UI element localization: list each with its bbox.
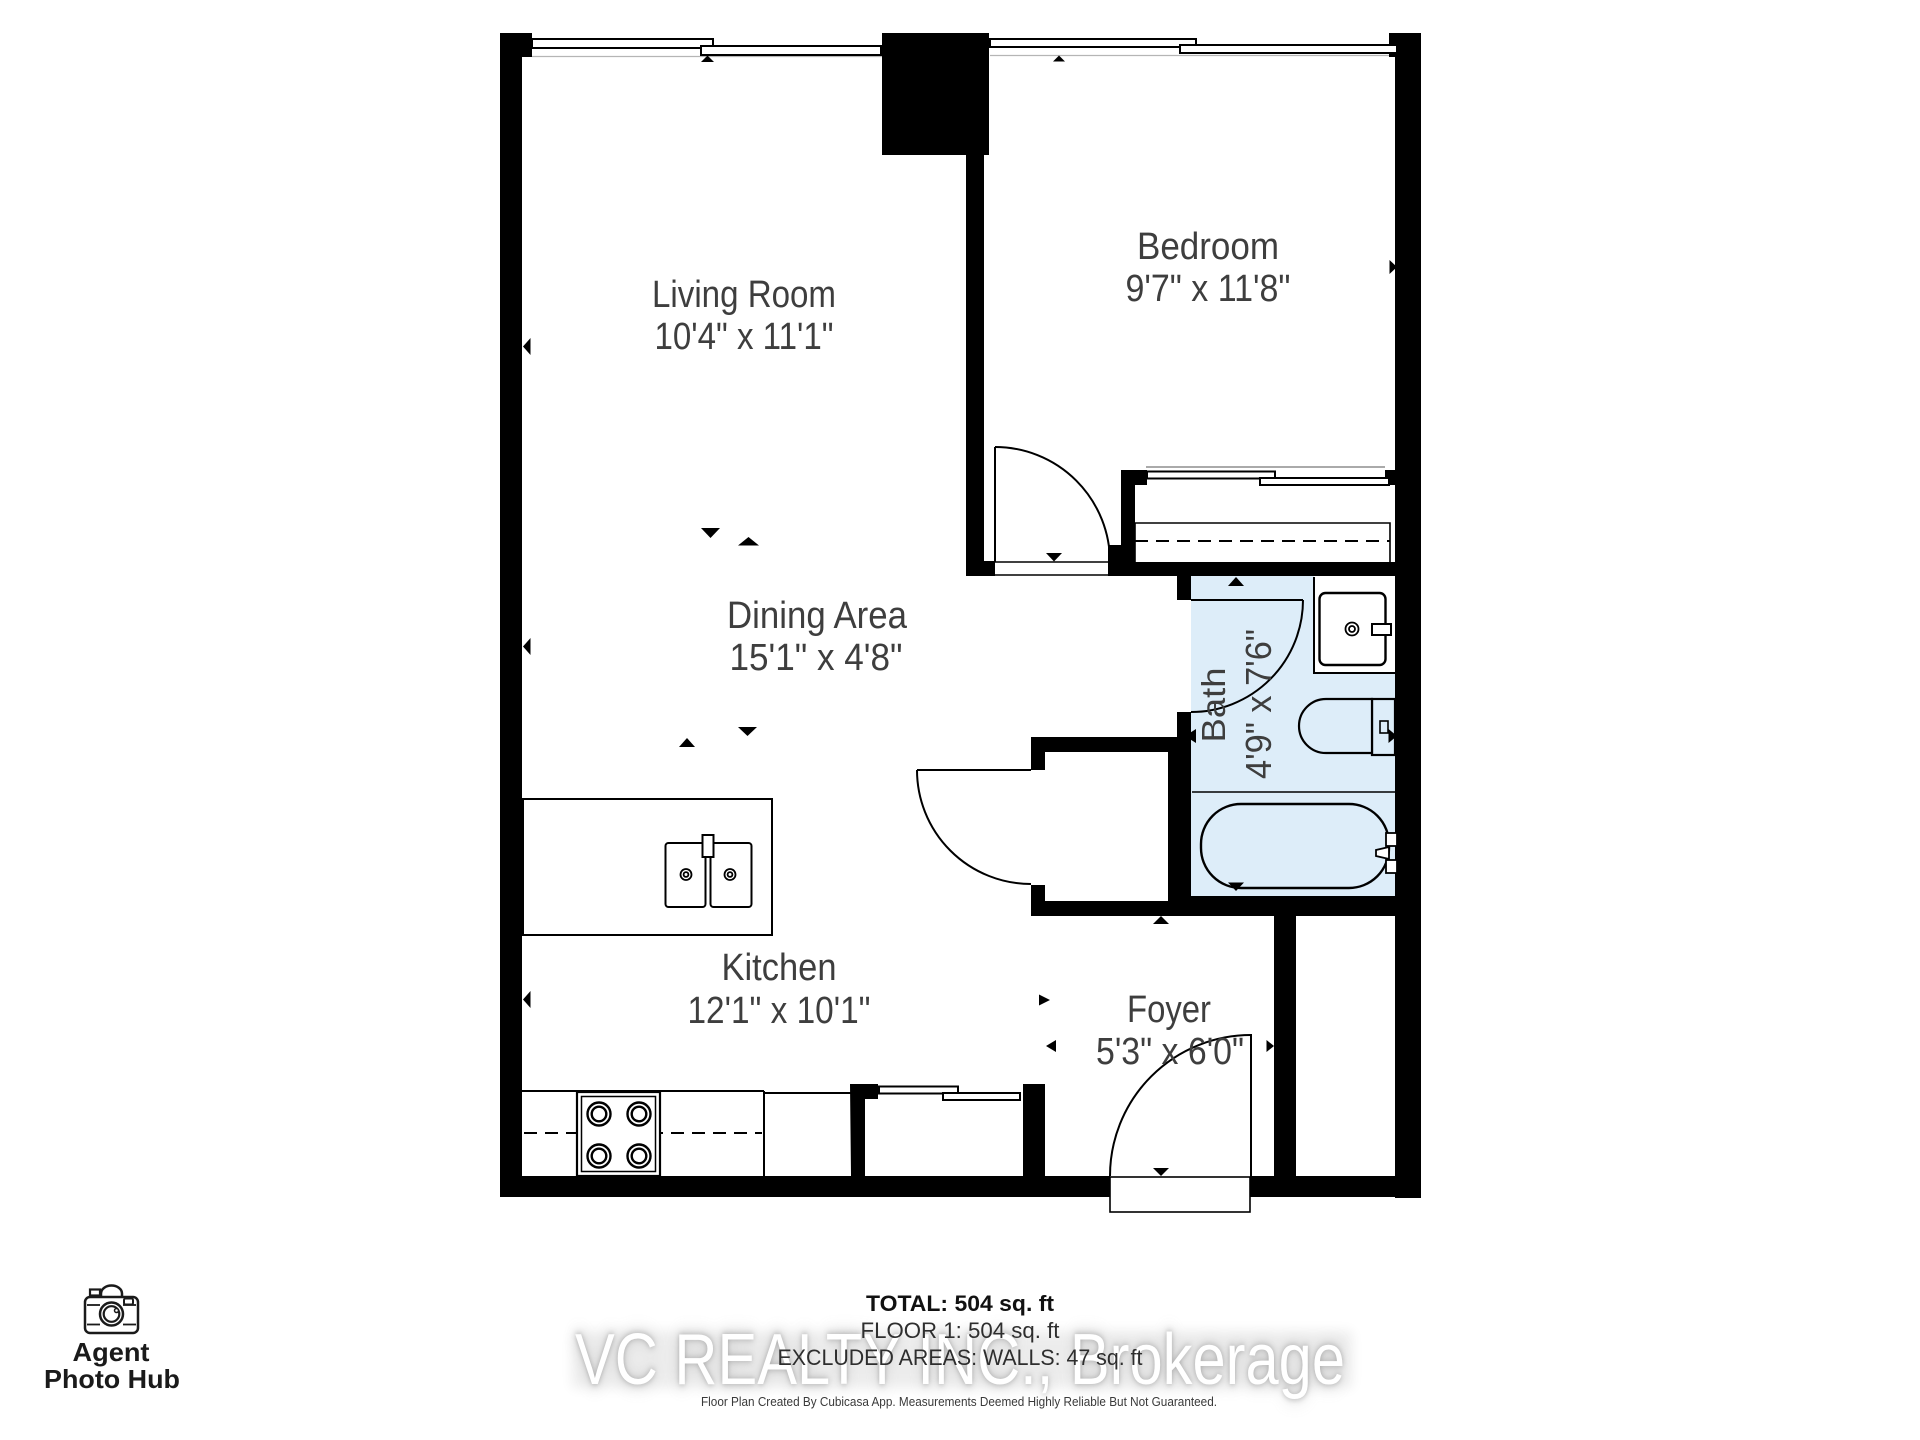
- svg-text:5'3" x 6'0": 5'3" x 6'0": [1096, 1031, 1244, 1073]
- svg-text:4'9" x 7'6": 4'9" x 7'6": [1238, 629, 1279, 779]
- svg-text:EXCLUDED AREAS: WALLS: 47 sq.: EXCLUDED AREAS: WALLS: 47 sq. ft: [778, 1345, 1143, 1370]
- svg-text:Bedroom: Bedroom: [1137, 226, 1279, 268]
- svg-text:FLOOR 1: 504 sq. ft: FLOOR 1: 504 sq. ft: [861, 1318, 1060, 1343]
- svg-text:Foyer: Foyer: [1127, 989, 1211, 1031]
- svg-text:9'7" x 11'8": 9'7" x 11'8": [1126, 268, 1291, 310]
- svg-text:TOTAL: 504 sq. ft: TOTAL: 504 sq. ft: [866, 1291, 1055, 1316]
- svg-text:Agent: Agent: [73, 1337, 150, 1367]
- svg-text:Photo Hub: Photo Hub: [44, 1364, 180, 1394]
- svg-text:Living Room: Living Room: [652, 274, 836, 316]
- svg-text:15'1" x 4'8": 15'1" x 4'8": [730, 637, 903, 679]
- svg-text:12'1" x 10'1": 12'1" x 10'1": [688, 990, 871, 1032]
- svg-text:Bath: Bath: [1195, 668, 1232, 743]
- svg-text:10'4" x 11'1": 10'4" x 11'1": [655, 316, 834, 358]
- svg-text:Floor Plan Created By Cubicasa: Floor Plan Created By Cubicasa App. Meas…: [701, 1395, 1217, 1409]
- svg-text:Dining Area: Dining Area: [727, 595, 908, 637]
- svg-text:Kitchen: Kitchen: [722, 947, 837, 989]
